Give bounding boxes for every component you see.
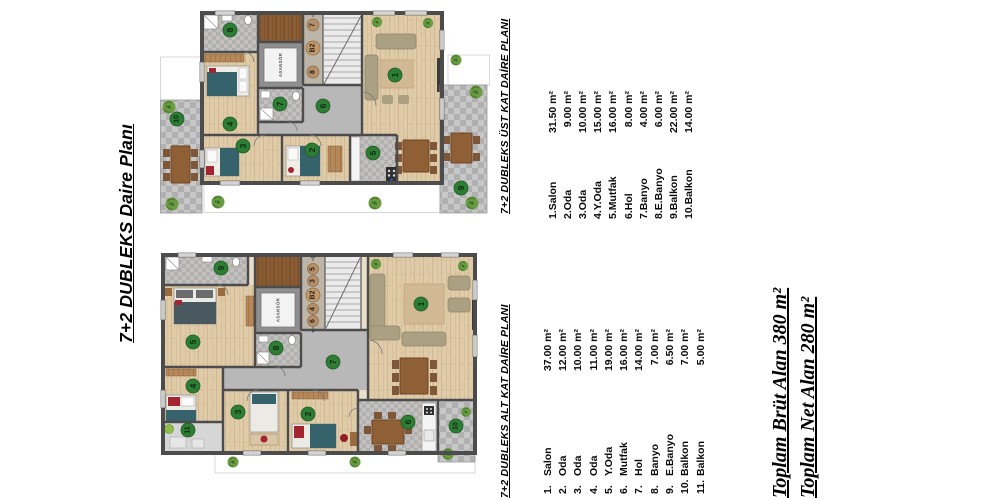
upper-mark-hol: 6 — [318, 103, 328, 108]
lower-unit6-label: 6 — [310, 319, 317, 323]
room-list-item: 11.Balkon5.00 m² — [693, 329, 708, 494]
floor-plan-sheet: 7+2 DUBLEKS Daire Planı — [0, 0, 1000, 500]
totals: Toplam Brüt Alan 380 m² Toplam Net Alan … — [766, 240, 822, 498]
lower-mark-yoda: 5 — [188, 339, 198, 344]
room-list-item: 10.Balkon7.00 m² — [678, 329, 693, 494]
upper-mark-oda2: 2 — [307, 147, 317, 152]
upper-elevator: ASANSÖR — [258, 42, 303, 88]
lower-elevator-label: ASANSÖR — [276, 297, 281, 322]
room-list-item: 7.Hol14.00 m² — [632, 329, 647, 494]
room-list-item: 7.Banyo4.00 m² — [636, 91, 651, 219]
room-list-item: 5.Y.Oda19.00 m² — [601, 329, 616, 494]
lower-unit3-label: 3 — [310, 279, 317, 283]
upper-stairs — [323, 13, 362, 85]
lower-stairs — [325, 255, 361, 330]
room-list-item: 8.E.Banyo6.00 m² — [651, 91, 666, 219]
lower-floor-plan: ASANSÖR — [158, 240, 488, 480]
lower-mark-balkon10: 10 — [453, 422, 460, 430]
room-list-item: 4.Oda11.00 m² — [586, 329, 601, 494]
lower-mark-mutfak: 6 — [403, 419, 413, 424]
lower-plan-title: 7+2 DUBLEKS ALT KAT DAİRE PLANI — [499, 292, 511, 498]
total-net: Toplam Net Alan 280 m² — [794, 240, 822, 498]
room-list-item: 1.Salon31.50 m² — [545, 91, 560, 219]
lower-unit4-label: 4 — [310, 307, 317, 311]
lower-level-label: B2 — [310, 290, 317, 299]
upper-mark-salon: 1 — [390, 72, 400, 77]
room-list-item: 9.Balkon22.00 m² — [667, 91, 682, 219]
upper-stair-labels: 7 B2 8 — [306, 12, 320, 78]
lower-mark-salon: 1 — [416, 301, 426, 306]
upper-mark-ebanyo: 8 — [225, 27, 235, 32]
upper-mark-balkon10: 10 — [174, 115, 181, 123]
main-title: 7+2 DUBLEKS Daire Planı — [116, 115, 137, 343]
upper-mark-yoda: 4 — [225, 121, 235, 126]
room-list-item: 8.Banyo7.00 m² — [647, 329, 662, 494]
lower-stair-labels: 5 3 B2 4 6 — [306, 256, 320, 332]
room-list-item: 2.Oda12.00 m² — [555, 329, 570, 494]
room-list-item: 10.Balkon14.00 m² — [682, 91, 697, 219]
upper-stair-down-label: 8 — [310, 70, 317, 74]
upper-stair-up-label: 7 — [310, 23, 317, 27]
room-list-item: 3.Oda10.00 m² — [575, 91, 590, 219]
room-list-item: 6.Mutfak16.00 m² — [616, 329, 631, 494]
upper-mark-mutfak: 5 — [368, 150, 378, 155]
lower-mark-oda3: 3 — [233, 409, 243, 414]
upper-floor-plan: ASANSÖR — [160, 0, 490, 220]
lower-terrace — [215, 453, 475, 473]
lower-mark-oda2: 2 — [303, 411, 313, 416]
room-list-item: 2.Oda9.00 m² — [560, 91, 575, 219]
lower-mark-ebanyo: 9 — [216, 265, 226, 270]
lower-mark-banyo: 8 — [271, 345, 281, 350]
lower-unit5-label: 5 — [310, 267, 317, 271]
room-list-item: 4.Y.Oda15.00 m² — [591, 91, 606, 219]
room-list-item: 6.Hol8.00 m² — [621, 91, 636, 219]
lower-mark-balkon11: 11 — [185, 426, 192, 434]
upper-elevator-label: ASANSÖR — [278, 52, 283, 77]
room-list-item: 9.E.Banyo6.50 m² — [662, 329, 677, 494]
room-list-item: 1.Salon37.00 m² — [540, 329, 555, 494]
upper-plan-title: 7+2 DUBLEKS ÜST KAT DAİRE PLANI — [499, 12, 511, 214]
room-list-item: 5.Mutfak16.00 m² — [606, 91, 621, 219]
upper-mark-banyo: 7 — [275, 101, 285, 106]
upper-room-list: 1.Salon31.50 m² 2.Oda9.00 m² 3.Oda10.00 … — [545, 91, 697, 219]
room-list-item: 3.Oda10.00 m² — [571, 329, 586, 494]
total-brut: Toplam Brüt Alan 380 m² — [766, 240, 794, 498]
upper-mark-balkon9: 9 — [456, 185, 466, 190]
lower-room-list: 1.Salon37.00 m² 2.Oda12.00 m² 3.Oda10.00… — [540, 329, 708, 494]
lower-elevator: ASANSÖR — [255, 287, 301, 333]
lower-mark-hol: 7 — [328, 359, 338, 364]
lower-mark-oda4: 4 — [188, 383, 198, 388]
upper-level-label: B2 — [310, 43, 317, 52]
upper-mark-oda3: 3 — [238, 143, 248, 148]
